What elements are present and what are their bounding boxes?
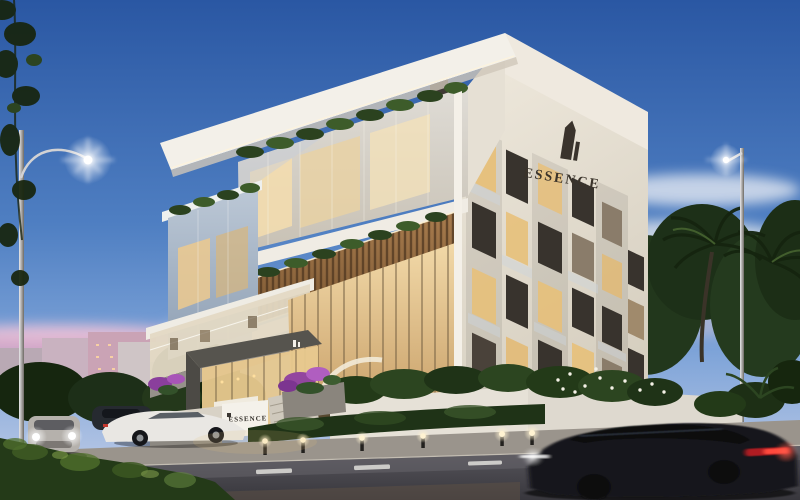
light-spill bbox=[193, 430, 317, 454]
entrance-sign-text: ESSENCE bbox=[228, 414, 267, 423]
architectural-rendering: ESSENCE bbox=[0, 0, 800, 500]
